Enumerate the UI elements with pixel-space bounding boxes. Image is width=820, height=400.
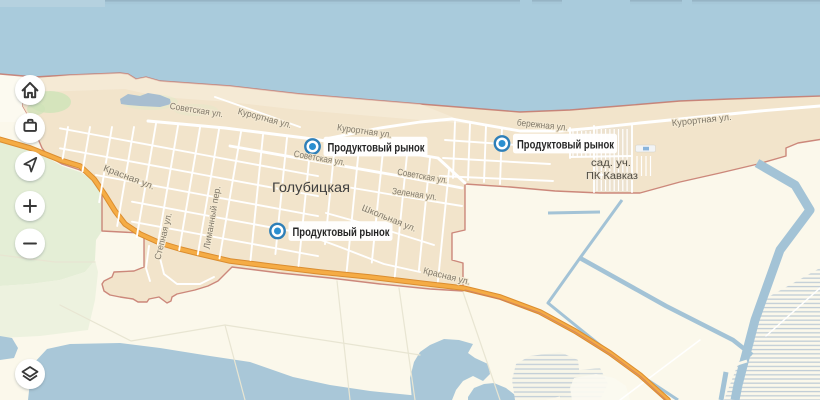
svg-text:сад. уч.: сад. уч. xyxy=(591,158,631,169)
svg-text:Голубицкая: Голубицкая xyxy=(272,179,350,195)
svg-text:ПК Кавказ: ПК Кавказ xyxy=(586,171,638,182)
svg-text:Продуктовый рынок: Продуктовый рынок xyxy=(293,225,391,239)
svg-text:Продуктовый рынок: Продуктовый рынок xyxy=(517,137,615,151)
svg-text:Продуктовый рынок: Продуктовый рынок xyxy=(328,140,426,154)
